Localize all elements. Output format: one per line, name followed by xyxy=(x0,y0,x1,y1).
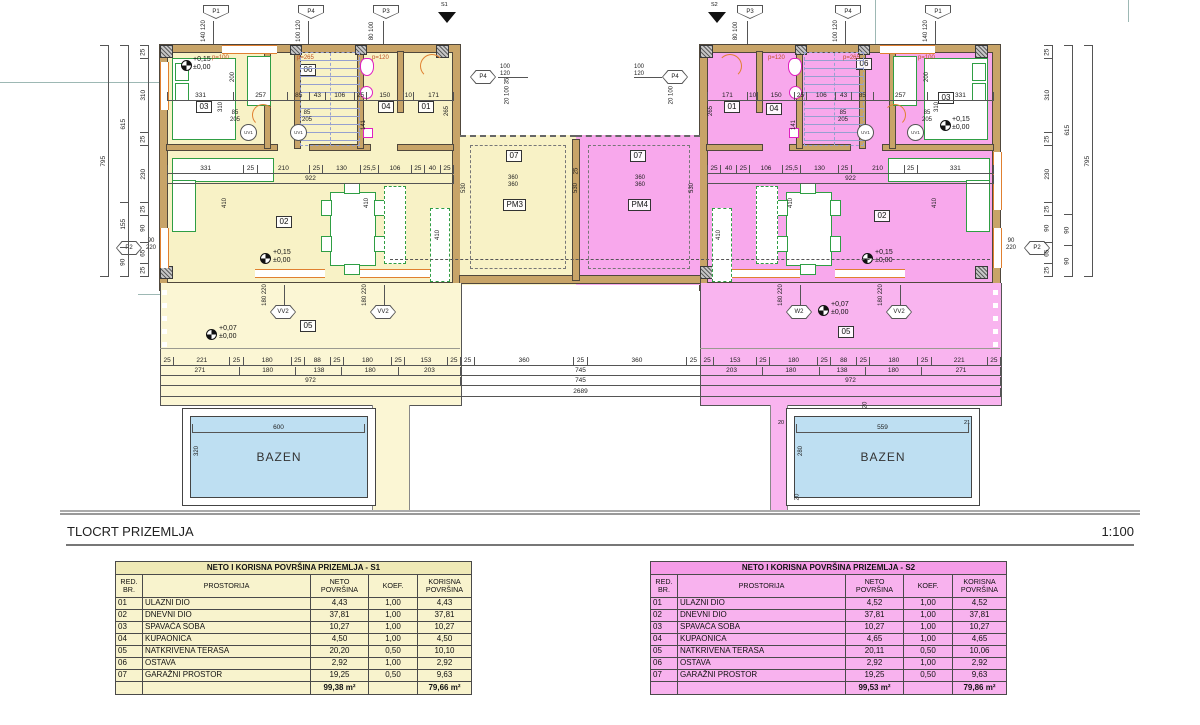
dim: 141 xyxy=(791,120,797,130)
dim-segment: 25 xyxy=(140,133,149,146)
dim-segment: 10 xyxy=(748,92,759,101)
pool-dim: 20 xyxy=(778,420,784,426)
dim-segment: 25 xyxy=(708,165,721,174)
ground-line xyxy=(60,510,1140,512)
dim-segment: 106 xyxy=(807,92,836,101)
dim: 200 xyxy=(230,72,236,82)
table-title: NETO I KORISNA POVRŠINA PRIZEMLJA - S1 xyxy=(116,562,472,575)
dim-segment: 40 xyxy=(721,165,737,174)
table-cell: 1,00 xyxy=(369,634,418,646)
pool-dim: 20 xyxy=(862,402,868,409)
dim-segment: 10 xyxy=(404,92,415,101)
dim: 180 220 xyxy=(362,284,368,306)
dim: 410 xyxy=(788,198,794,208)
dim-segment: 210 xyxy=(852,165,905,174)
dim-segment: 88 xyxy=(305,357,331,366)
dim-segment: 138 xyxy=(296,367,342,376)
kitchen-counter xyxy=(712,208,732,282)
chair xyxy=(830,200,841,216)
dim: 410 xyxy=(435,230,441,240)
table-cell: 1,00 xyxy=(904,598,953,610)
dim-segment: 180 xyxy=(870,357,918,366)
table-row: 01ULAZNI DIO4,521,004,52 xyxy=(651,598,1007,610)
dim-segment: 203 xyxy=(399,367,461,376)
table-cell: 2,92 xyxy=(418,658,472,670)
door-dims: 85 205 xyxy=(302,110,312,124)
pillow xyxy=(972,63,986,81)
dim-segment: 972 xyxy=(161,377,461,386)
uv1-marker: UV1 xyxy=(907,124,924,141)
table-cell: NATKRIVENA TERASA xyxy=(143,646,311,658)
col-header: NETO POVRŠINA xyxy=(311,575,369,598)
dim-segment: 180 xyxy=(763,367,819,376)
table-row: 03SPAVAĆA SOBA10,271,0010,27 xyxy=(116,622,472,634)
table-cell: 4,65 xyxy=(846,634,904,646)
dim-segment: 25 xyxy=(441,165,454,174)
dim-segment: 106 xyxy=(326,92,355,101)
dim-col: 6159090 xyxy=(1064,45,1073,277)
terrace-line xyxy=(160,348,460,349)
room-number-02: 02 xyxy=(276,216,292,228)
dim: 141 xyxy=(361,120,367,130)
dim-segment: 171 xyxy=(414,92,454,101)
dim: 360 360 xyxy=(508,175,518,189)
dim-segment: 331 xyxy=(918,165,994,174)
door-swing xyxy=(252,104,274,126)
door-opening xyxy=(993,228,1002,268)
pier xyxy=(160,45,173,58)
table-cell: OSTAVA xyxy=(143,658,311,670)
marker-stem xyxy=(384,285,385,305)
room-number-05: 05 xyxy=(300,320,316,332)
table-cell: 4,50 xyxy=(418,634,472,646)
dim-segment: 171 xyxy=(708,92,748,101)
p-label: p=100 xyxy=(918,55,935,61)
room-number-04: 04 xyxy=(378,101,394,113)
dim-segment: 360 xyxy=(588,357,687,366)
entrance-tag: S1 xyxy=(441,2,448,8)
marker-stem xyxy=(800,285,801,305)
dim-segment: 310 xyxy=(1044,59,1053,133)
dim-segment: 25 xyxy=(310,165,323,174)
axis-dims: 140 120 xyxy=(201,20,207,42)
dim: 410 xyxy=(222,198,228,208)
terrace-door xyxy=(360,269,430,278)
table-cell: 10,10 xyxy=(418,646,472,658)
table-cell: 07 xyxy=(651,670,678,682)
table-cell: 10,06 xyxy=(953,646,1007,658)
terrace-door xyxy=(835,269,905,278)
dim-row: 972 xyxy=(160,377,461,386)
dim-segment: 221 xyxy=(932,357,988,366)
dim-segment: 90 xyxy=(140,216,149,243)
table-cell: ULAZNI DIO xyxy=(678,598,846,610)
dim: 25 xyxy=(573,168,579,175)
table-total-cell xyxy=(116,682,143,695)
axis-dims: 80 100 xyxy=(369,22,375,40)
elevation-value: +0,15 ±0,00 xyxy=(273,249,291,266)
dim-segment: 360 xyxy=(475,357,574,366)
elevation-value: +0,07 ±0,00 xyxy=(219,325,237,342)
table-cell: 1,00 xyxy=(369,610,418,622)
dim-segment: 230 xyxy=(1044,146,1053,203)
table-cell: 0,50 xyxy=(904,646,953,658)
dim-segment: 180 xyxy=(240,367,296,376)
table-cell: 4,43 xyxy=(418,598,472,610)
axis-dims: 100 120 xyxy=(296,20,302,42)
dim-segment: 90 xyxy=(120,248,129,277)
table-cell: 1,00 xyxy=(369,598,418,610)
dim-row: 25221251802588251802515325 xyxy=(160,357,461,366)
dim: 530 xyxy=(689,183,695,193)
dim-segment: 600 xyxy=(193,424,365,433)
axis-dims: 100 120 xyxy=(833,20,839,42)
table-cell: 07 xyxy=(116,670,143,682)
sofa xyxy=(966,180,990,232)
dim-segment: 331 xyxy=(168,92,234,101)
door-dims: 85 205 xyxy=(838,110,848,124)
door-dims: 85 205 xyxy=(922,110,932,124)
table-cell: 03 xyxy=(116,622,143,634)
dim-segment: 331 xyxy=(168,165,244,174)
dim: 310 xyxy=(218,102,224,112)
dim-segment: 180 xyxy=(342,367,398,376)
dim-row: 25402510625,51302521025331 xyxy=(707,165,994,174)
dim-segment: 138 xyxy=(820,367,866,376)
dim: 180 220 xyxy=(878,284,884,306)
table-cell: 1,00 xyxy=(369,658,418,670)
marker-stem xyxy=(900,285,901,305)
dim-segment: 25,5 xyxy=(361,165,380,174)
table-total-row: 99,53 m²79,86 m² xyxy=(651,682,1007,695)
chair xyxy=(321,200,332,216)
room-number-03: 03 xyxy=(196,101,212,113)
dim: 410 xyxy=(364,198,370,208)
table-cell: DNEVNI DIO xyxy=(678,610,846,622)
table-cell: 06 xyxy=(651,658,678,670)
axis-marker-p4: P4 xyxy=(470,70,496,84)
dim-segment: 90 xyxy=(1044,216,1053,243)
terrace-line xyxy=(700,348,1000,349)
dim: 180 220 xyxy=(262,284,268,306)
dim-segment: 25 xyxy=(292,357,305,366)
garage-wall xyxy=(460,276,700,283)
room-number-07: 07 xyxy=(630,150,646,162)
p-label: p=265 xyxy=(297,55,314,61)
uv1-marker: UV1 xyxy=(290,124,307,141)
table-title-row: NETO I KORISNA POVRŠINA PRIZEMLJA - S2 xyxy=(651,562,1007,575)
dim-segment: 922 xyxy=(708,175,994,184)
table-total-cell: 99,53 m² xyxy=(846,682,904,695)
table-row: 05NATKRIVENA TERASA20,200,5010,10 xyxy=(116,646,472,658)
pool-dim: 20 xyxy=(794,494,800,501)
table-cell: 9,63 xyxy=(953,670,1007,682)
table-cell: 1,00 xyxy=(904,658,953,670)
dim-segment: 203 xyxy=(701,367,763,376)
terrace-door xyxy=(255,269,325,278)
dim-segment: 2689 xyxy=(161,388,1001,397)
col-header: PROSTORIJA xyxy=(678,575,846,598)
room-number-01: 01 xyxy=(724,101,740,113)
uv1-marker: UV1 xyxy=(857,124,874,141)
dim-segment: 130 xyxy=(801,165,838,174)
table-cell: 19,25 xyxy=(311,670,369,682)
dim-segment: 65 xyxy=(1044,243,1053,264)
dim-segment: 795 xyxy=(1084,46,1093,277)
chair xyxy=(777,236,788,252)
axis-marker-p3: P3 xyxy=(373,5,399,19)
pier xyxy=(975,266,988,279)
axis-dims: 100 120 xyxy=(634,64,644,78)
col-header: KORISNA POVRŠINA xyxy=(953,575,1007,598)
table-total-cell: 79,66 m² xyxy=(418,682,472,695)
kitchen-island xyxy=(384,186,406,264)
entrance-tag: S2 xyxy=(711,2,718,8)
table-cell: 4,52 xyxy=(953,598,1007,610)
dim-row: 922 xyxy=(707,175,994,184)
axis-marker-p1: P1 xyxy=(925,5,951,19)
dim: 20 100 35 xyxy=(504,78,510,105)
axis-stem xyxy=(845,21,846,45)
elevation-symbol xyxy=(940,120,951,131)
table-cell: 01 xyxy=(116,598,143,610)
dim-segment: 106 xyxy=(750,165,783,174)
uv1-marker: UV1 xyxy=(240,124,257,141)
dim-segment: 331 xyxy=(928,92,994,101)
table-cell: OSTAVA xyxy=(678,658,846,670)
dim-segment: 25 xyxy=(461,357,475,366)
reference-line xyxy=(0,82,160,83)
dim-segment: 25 xyxy=(140,46,149,59)
table-cell: 1,00 xyxy=(904,622,953,634)
pier xyxy=(975,45,988,58)
dim-segment: 25 xyxy=(918,357,931,366)
dim-col: 795 xyxy=(1084,45,1093,277)
pool-dim: 559 xyxy=(796,424,969,433)
dim-segment: 25 xyxy=(392,357,405,366)
partition-wall xyxy=(167,145,277,150)
dim-col: 795 xyxy=(100,45,109,277)
dim-segment: 43 xyxy=(836,92,851,101)
dim-segment: 153 xyxy=(405,357,448,366)
elevation-symbol xyxy=(181,60,192,71)
dim-segment: 150 xyxy=(758,92,794,101)
pool-dim: 280 xyxy=(798,446,804,456)
dim-row: 745 xyxy=(460,377,701,386)
table-total-cell xyxy=(651,682,678,695)
drawing-scale: 1:100 xyxy=(1101,524,1134,539)
dim-segment: 615 xyxy=(120,46,129,203)
partition-wall xyxy=(707,145,762,150)
dim-segment: 25 xyxy=(757,357,770,366)
table-row: 01ULAZNI DIO4,431,004,43 xyxy=(116,598,472,610)
axis-dims: 90 220 xyxy=(1006,238,1016,252)
table-title: NETO I KORISNA POVRŠINA PRIZEMLJA - S2 xyxy=(651,562,1007,575)
dim-col: 253102523025906525 xyxy=(1044,45,1053,277)
dim-segment: 85 xyxy=(288,92,310,101)
dim: 200 xyxy=(924,72,930,82)
dim-segment: 922 xyxy=(168,175,454,184)
dim-row: 922 xyxy=(167,175,454,184)
window xyxy=(160,62,169,110)
door-opening xyxy=(160,228,169,268)
room-number-07: 07 xyxy=(506,150,522,162)
col-header: RED. BR. xyxy=(116,575,143,598)
dim-segment: 25 xyxy=(355,92,367,101)
table-cell: 37,81 xyxy=(953,610,1007,622)
table-cell: 10,27 xyxy=(846,622,904,634)
reference-line xyxy=(1128,0,1129,22)
partition-wall xyxy=(757,52,762,112)
elevation-symbol xyxy=(260,253,271,264)
dim-segment: 25 xyxy=(412,165,425,174)
chair xyxy=(830,236,841,252)
dim-segment: 25 xyxy=(448,357,461,366)
dim-segment: 106 xyxy=(379,165,412,174)
table-row: 03SPAVAĆA SOBA10,271,0010,27 xyxy=(651,622,1007,634)
room-number-02: 02 xyxy=(874,210,890,222)
table-total-row: 99,38 m²79,66 m² xyxy=(116,682,472,695)
table-cell: 4,50 xyxy=(311,634,369,646)
table-cell: 1,00 xyxy=(904,610,953,622)
dim-row: 253602536025 xyxy=(460,357,701,366)
axis-stem xyxy=(308,21,309,45)
p-label: p=265 xyxy=(843,55,860,61)
table-cell: 4,52 xyxy=(846,598,904,610)
table-total-cell xyxy=(904,682,953,695)
table-total-cell: 99,38 m² xyxy=(311,682,369,695)
dim-segment: 25 xyxy=(905,165,918,174)
dim-segment: 25 xyxy=(818,357,831,366)
pool-dim: 600 xyxy=(192,424,365,433)
dim-segment: 90 xyxy=(1064,246,1073,277)
col-header: KORISNA POVRŠINA xyxy=(418,575,472,598)
dim-segment: 180 xyxy=(244,357,292,366)
walkway-s1 xyxy=(372,405,410,511)
partition-wall xyxy=(398,52,403,112)
dim-segment: 210 xyxy=(258,165,311,174)
dim-segment: 25 xyxy=(230,357,243,366)
dim-segment: 25,5 xyxy=(783,165,802,174)
chair xyxy=(800,264,816,275)
area-table-s1: NETO I KORISNA POVRŠINA PRIZEMLJA - S1 R… xyxy=(115,561,472,695)
dim-segment: 795 xyxy=(100,46,109,277)
dim-segment: 130 xyxy=(323,165,360,174)
dim-segment: 25 xyxy=(701,357,714,366)
table-cell: 10,27 xyxy=(953,622,1007,634)
dim-segment: 230 xyxy=(140,146,149,203)
table-cell: 20,20 xyxy=(311,646,369,658)
dim-segment: 25 xyxy=(1044,203,1053,216)
table-cell: 37,81 xyxy=(418,610,472,622)
chair xyxy=(344,264,360,275)
dim-segment: 257 xyxy=(874,92,928,101)
dim: 530 xyxy=(573,183,579,193)
table-cell: 05 xyxy=(116,646,143,658)
dim-row: 745 xyxy=(460,367,701,376)
dim-segment: 43 xyxy=(310,92,325,101)
table-cell: 4,43 xyxy=(311,598,369,610)
door-dims: 85 205 xyxy=(230,110,240,124)
col-header: PROSTORIJA xyxy=(143,575,311,598)
terrace-door xyxy=(730,269,800,278)
col-header: KOEF. xyxy=(369,575,418,598)
dim-segment: 40 xyxy=(425,165,441,174)
axis-marker-p4: P4 xyxy=(835,5,861,19)
dim-segment: 180 xyxy=(866,367,922,376)
room-number-04: 04 xyxy=(766,103,782,115)
toilet xyxy=(788,58,802,76)
table-cell: 1,00 xyxy=(904,634,953,646)
table-row: 02DNEVNI DIO37,811,0037,81 xyxy=(651,610,1007,622)
area-table-s2: NETO I KORISNA POVRŠINA PRIZEMLJA - S2 R… xyxy=(650,561,1007,695)
table-cell: NATKRIVENA TERASA xyxy=(678,646,846,658)
table-cell: SPAVAĆA SOBA xyxy=(143,622,311,634)
elevation-value: +0,15 ±0,00 xyxy=(875,249,893,266)
reference-line xyxy=(138,294,162,295)
dim-segment: 25 xyxy=(988,357,1001,366)
dim-segment: 257 xyxy=(234,92,288,101)
table-cell: 1,00 xyxy=(369,622,418,634)
table-row: 07GARAŽNI PROSTOR19,250,509,63 xyxy=(651,670,1007,682)
dim-segment: 559 xyxy=(797,424,969,433)
dim-segment: 25 xyxy=(1044,133,1053,146)
entrance-arrow xyxy=(708,12,726,23)
dim-segment: 25 xyxy=(795,92,807,101)
pool-dim: 320 xyxy=(194,446,200,456)
dim: 265 xyxy=(708,106,714,116)
table-cell: 9,63 xyxy=(418,670,472,682)
p-label: p=100 xyxy=(212,55,229,61)
dim-segment: 271 xyxy=(161,367,240,376)
partition-wall xyxy=(398,145,453,150)
chair xyxy=(321,236,332,252)
table-row: 06OSTAVA2,921,002,92 xyxy=(116,658,472,670)
table-cell: 20,11 xyxy=(846,646,904,658)
terrace-edge xyxy=(162,290,167,348)
axis-dims: 100 120 xyxy=(500,64,510,78)
col-header: NETO POVRŠINA xyxy=(846,575,904,598)
dim-col: 61515590 xyxy=(120,45,129,277)
table-header-row: RED. BR. PROSTORIJA NETO POVRŠINA KOEF. … xyxy=(116,575,472,598)
axis-marker-p1: P1 xyxy=(203,5,229,19)
kitchen-island xyxy=(756,186,778,264)
elevation-value: +0,15 ±0,00 xyxy=(952,116,970,133)
elevation-value: +0,07 ±0,00 xyxy=(831,301,849,318)
dim-segment: 972 xyxy=(701,377,1001,386)
divider xyxy=(66,544,1134,546)
dim: 180 220 xyxy=(778,284,784,306)
dim: 265 xyxy=(444,106,450,116)
window xyxy=(880,45,935,54)
table-cell: 10,27 xyxy=(311,622,369,634)
table-row: 07GARAŽNI PROSTOR19,250,509,63 xyxy=(116,670,472,682)
dim-row: 33125785431062515010171 xyxy=(167,92,454,101)
room-number-01: 01 xyxy=(418,101,434,113)
dim-segment: 25 xyxy=(574,357,588,366)
dim-segment: 615 xyxy=(1064,46,1073,215)
table-cell: 0,50 xyxy=(369,646,418,658)
pier xyxy=(700,45,713,58)
table-total-cell xyxy=(143,682,311,695)
drawing-title: TLOCRT PRIZEMLJA xyxy=(67,524,194,539)
table-cell: 04 xyxy=(651,634,678,646)
pool-dim: 21 xyxy=(964,420,970,426)
marker-stem xyxy=(284,285,285,305)
dim-segment: 25 xyxy=(857,357,870,366)
table-cell: 4,65 xyxy=(953,634,1007,646)
elevation-symbol xyxy=(206,329,217,340)
